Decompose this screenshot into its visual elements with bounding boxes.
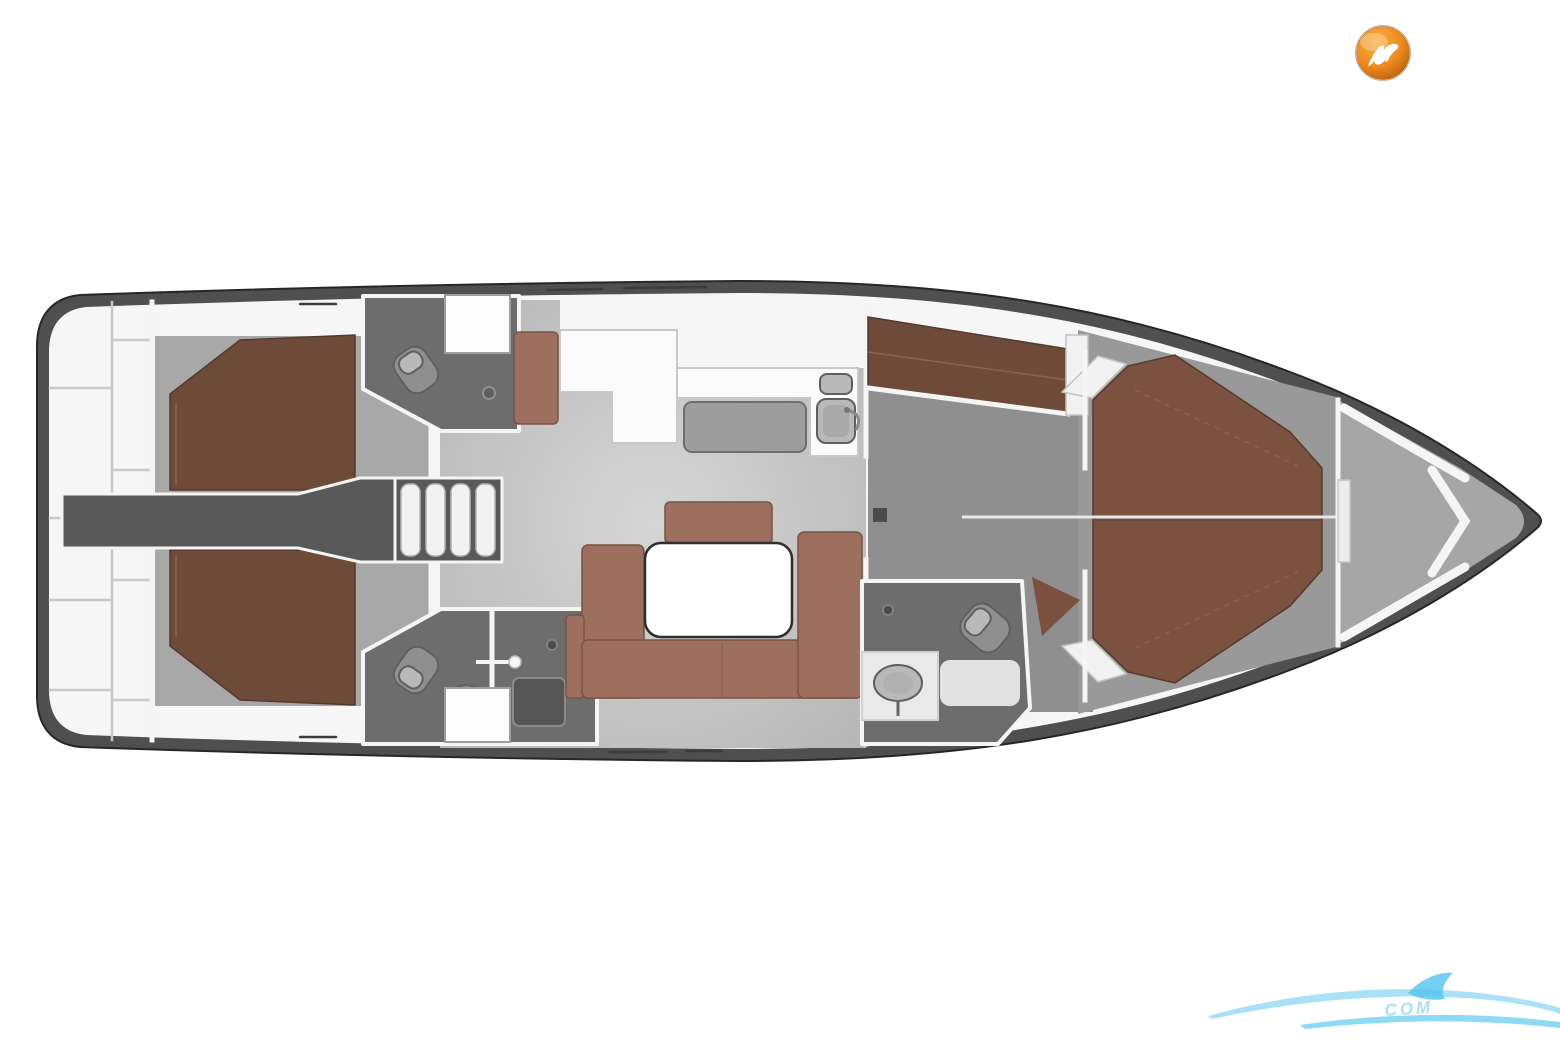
shower-tray [513,678,565,726]
yacht-floorplan-image: COM [0,0,1560,1040]
watermark: COM [1208,973,1560,1029]
shower-drain-icon [547,640,557,650]
galley [677,368,859,456]
watermark-text: COM [1384,998,1434,1020]
shower-mat [940,660,1020,706]
wet-locker [445,295,510,353]
wet-locker [445,688,510,742]
deck-plan-canvas: COM [0,0,1560,1040]
sink-small-bowl [820,374,852,394]
faucet-base [844,407,850,413]
shower-drain-icon [483,387,495,399]
step-tread [451,484,470,556]
step-tread [476,484,495,556]
forward-head [862,581,1030,744]
salon-bench [665,502,772,544]
step-tread [401,484,420,556]
brand-logo [1356,26,1410,80]
navigator-seat [514,332,558,424]
salon-table [645,543,792,637]
stove [684,402,806,452]
companionway-steps [395,478,502,562]
washbasin-bowl [883,672,913,694]
anchor-locker-floor [1338,400,1524,645]
deck-hatch-mark [547,289,602,290]
wave-swoosh-icon [1300,1015,1560,1029]
locker-vent [873,508,887,522]
step-tread [426,484,445,556]
shower-door-handle-knob [509,656,521,668]
deck-hatch-mark [624,287,706,288]
bulkhead-bracket [1338,480,1350,562]
settee-right-arm [798,532,862,698]
shower-drain-icon [883,605,893,615]
